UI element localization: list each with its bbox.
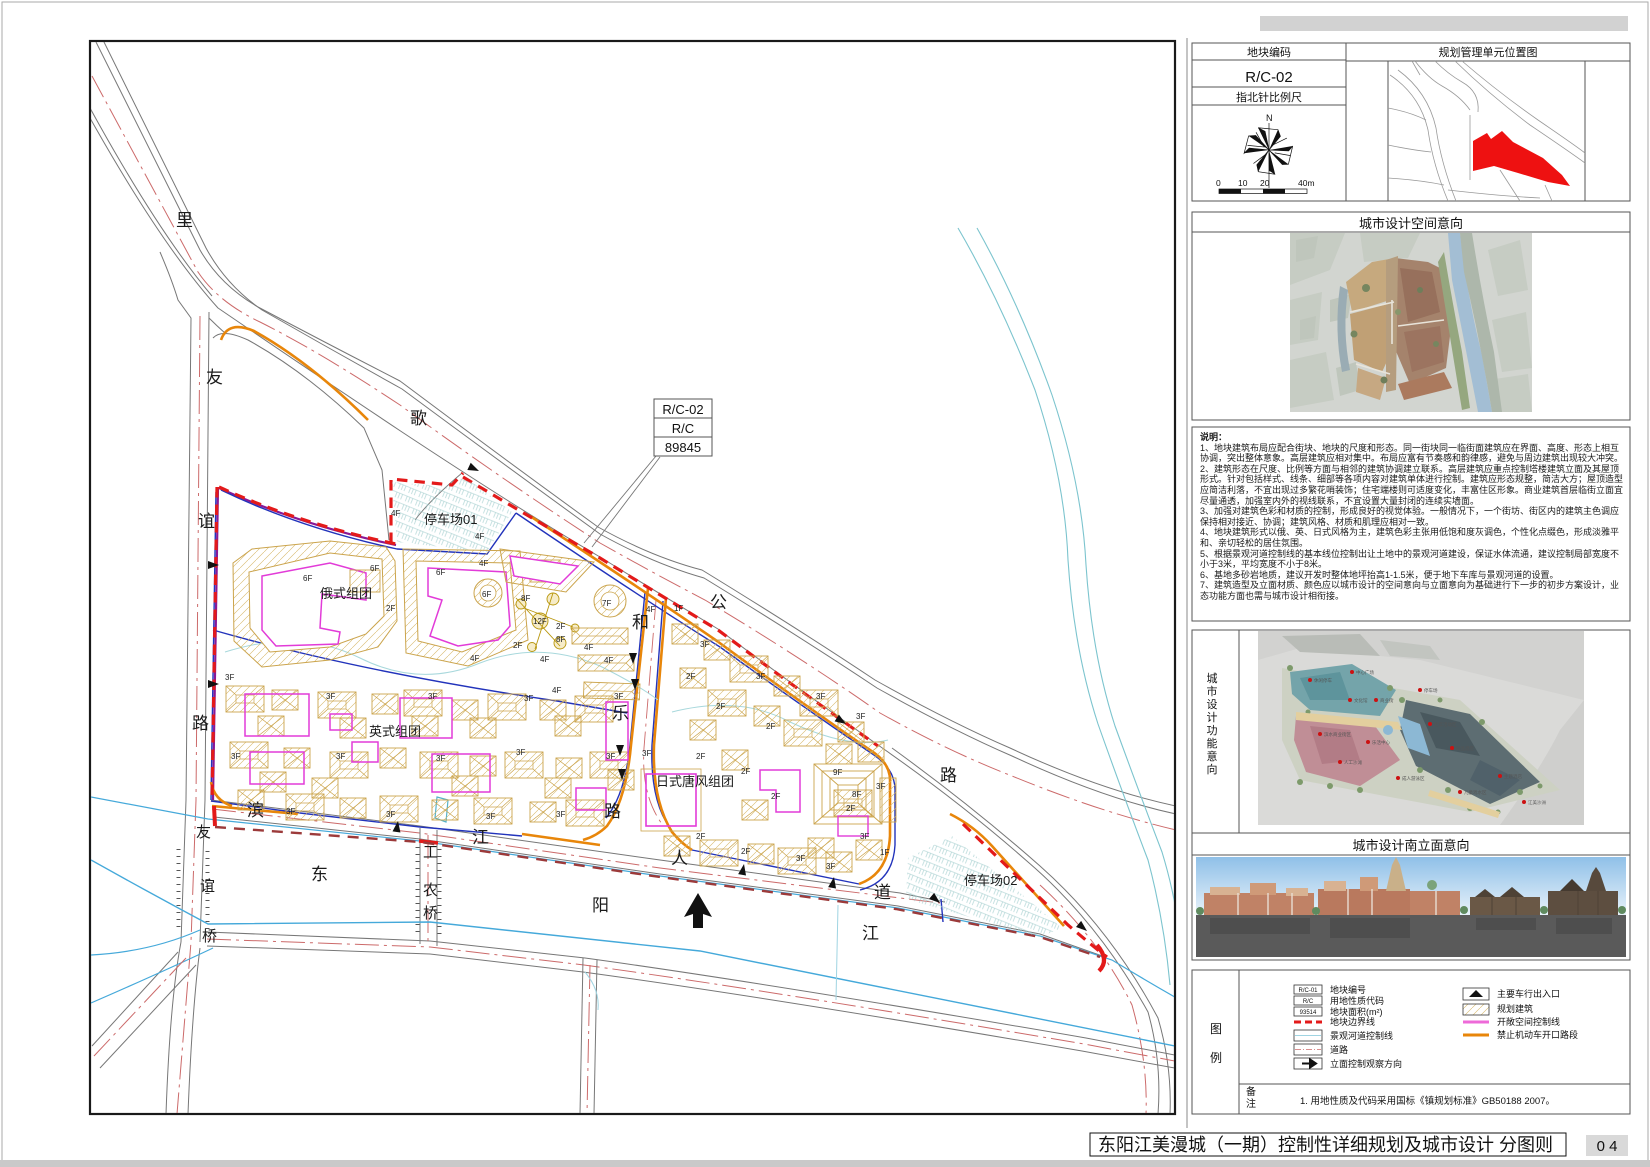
svg-text:景观河道控制线: 景观河道控制线	[1330, 1030, 1393, 1041]
svg-text:停车场: 停车场	[1424, 687, 1438, 694]
svg-text:3F: 3F	[816, 692, 825, 701]
svg-text:4F: 4F	[470, 654, 479, 663]
svg-text:12F: 12F	[533, 617, 547, 626]
svg-text:友: 友	[196, 824, 211, 841]
svg-text:道路: 道路	[1330, 1044, 1348, 1055]
svg-text:R/C-02: R/C-02	[662, 402, 703, 417]
svg-text:江: 江	[862, 924, 879, 943]
svg-text:4F: 4F	[552, 686, 561, 695]
svg-text:公: 公	[710, 593, 727, 612]
svg-text:东阳江美漫城（一期）控制性详细规划及城市设计 分图则: 东阳江美漫城（一期）控制性详细规划及城市设计 分图则	[1098, 1135, 1553, 1155]
svg-text:2F: 2F	[766, 722, 775, 731]
svg-text:3F: 3F	[428, 692, 437, 701]
svg-text:立面控制观察方向: 立面控制观察方向	[1330, 1058, 1402, 1069]
svg-text:6F: 6F	[303, 574, 312, 583]
svg-text:备: 备	[1246, 1085, 1256, 1098]
svg-text:乐活中心: 乐活中心	[1372, 739, 1390, 746]
svg-text:3F: 3F	[516, 748, 525, 757]
svg-text:2F: 2F	[696, 752, 705, 761]
svg-text:用地性质代码: 用地性质代码	[1330, 995, 1384, 1006]
svg-text:桥: 桥	[202, 928, 217, 945]
svg-text:滨: 滨	[247, 801, 264, 820]
svg-text:地块面积(m²): 地块面积(m²)	[1330, 1006, 1383, 1017]
svg-text:7F: 7F	[602, 599, 611, 608]
svg-text:主题酒店: 主题酒店	[1504, 773, 1522, 780]
svg-text:路: 路	[940, 766, 957, 785]
svg-text:文化馆: 文化馆	[1354, 697, 1368, 704]
svg-text:R/C: R/C	[672, 421, 694, 436]
svg-text:3F: 3F	[876, 782, 885, 791]
svg-text:江美沙洲: 江美沙洲	[1528, 799, 1546, 806]
svg-text:N: N	[1266, 113, 1273, 123]
svg-text:和: 和	[632, 613, 649, 632]
svg-text:0: 0	[1216, 178, 1221, 188]
svg-text:2F: 2F	[686, 672, 695, 681]
svg-text:例: 例	[1210, 1051, 1222, 1065]
svg-text:规划建筑: 规划建筑	[1497, 1003, 1533, 1014]
svg-text:中心广场: 中心广场	[1356, 669, 1374, 676]
svg-text:4F: 4F	[391, 509, 400, 518]
svg-text:乐: 乐	[612, 704, 629, 723]
svg-text:6F: 6F	[370, 564, 379, 573]
svg-text:3F: 3F	[326, 692, 335, 701]
svg-text:向: 向	[1207, 762, 1218, 776]
svg-text:城市设计南立面意向: 城市设计南立面意向	[1352, 838, 1469, 853]
svg-text:谊: 谊	[198, 512, 215, 531]
svg-text:3F: 3F	[486, 812, 495, 821]
svg-text:3F: 3F	[614, 692, 623, 701]
svg-text:市: 市	[1207, 684, 1218, 698]
svg-text:4F: 4F	[479, 559, 488, 568]
svg-text:图: 图	[1210, 1022, 1222, 1036]
svg-text:道: 道	[874, 883, 891, 902]
svg-text:工: 工	[423, 844, 438, 861]
svg-text:2F: 2F	[386, 604, 395, 613]
svg-text:精品酒店: 精品酒店	[1456, 745, 1474, 752]
svg-text:注: 注	[1246, 1097, 1256, 1110]
svg-text:20: 20	[1260, 178, 1270, 188]
svg-text:0 4: 0 4	[1597, 1138, 1618, 1155]
svg-text:东: 东	[311, 865, 328, 884]
svg-text:人工沙滩: 人工沙滩	[1344, 759, 1362, 766]
svg-text:2F: 2F	[556, 622, 565, 631]
svg-text:89845: 89845	[665, 440, 701, 455]
svg-text:计: 计	[1207, 711, 1218, 724]
svg-text:商业街: 商业街	[1380, 697, 1394, 704]
svg-text:里: 里	[176, 211, 193, 230]
svg-text:1F: 1F	[880, 848, 889, 857]
svg-text:93514: 93514	[1300, 1010, 1317, 1016]
svg-text:城市设计空间意向: 城市设计空间意向	[1359, 216, 1463, 231]
svg-text:4F: 4F	[540, 655, 549, 664]
svg-text:主要车行出入口: 主要车行出入口	[1497, 988, 1560, 999]
svg-text:路: 路	[604, 802, 621, 821]
svg-text:地块编码: 地块编码	[1247, 45, 1291, 59]
svg-text:3F: 3F	[524, 694, 533, 703]
svg-text:8F: 8F	[556, 635, 565, 644]
svg-text:4F: 4F	[604, 656, 613, 665]
svg-text:40m: 40m	[1298, 178, 1315, 188]
svg-text:2F: 2F	[741, 767, 750, 776]
svg-text:3F: 3F	[386, 810, 395, 819]
svg-text:能: 能	[1207, 736, 1218, 750]
svg-text:桥: 桥	[423, 905, 438, 922]
svg-text:3F: 3F	[700, 640, 709, 649]
svg-text:禁止机动车开口路段: 禁止机动车开口路段	[1497, 1029, 1578, 1040]
svg-text:2F: 2F	[846, 804, 855, 813]
svg-text:谊: 谊	[200, 878, 215, 895]
svg-text:英式组团: 英式组团	[369, 724, 421, 739]
svg-text:2F: 2F	[741, 847, 750, 856]
svg-text:8F: 8F	[521, 594, 530, 603]
svg-text:儿童戏水区: 儿童戏水区	[1464, 789, 1487, 796]
svg-text:3F: 3F	[796, 854, 805, 863]
svg-text:3F: 3F	[436, 754, 445, 763]
svg-text:4F: 4F	[584, 643, 593, 652]
svg-text:3F: 3F	[642, 749, 651, 758]
svg-text:友: 友	[206, 368, 223, 387]
svg-text:歌: 歌	[410, 409, 427, 428]
svg-text:4F: 4F	[475, 532, 484, 541]
svg-text:10: 10	[1238, 178, 1248, 188]
svg-text:人: 人	[671, 849, 688, 868]
svg-text:6F: 6F	[436, 568, 445, 577]
svg-text:3F: 3F	[860, 832, 869, 841]
svg-text:3F: 3F	[336, 752, 345, 761]
svg-text:老年活动区: 老年活动区	[1434, 721, 1457, 728]
svg-text:农: 农	[423, 882, 438, 899]
svg-text:1. 用地性质及代码采用国标《镇规划标准》GB50188: 1. 用地性质及代码采用国标《镇规划标准》GB50188 2007。	[1300, 1095, 1555, 1107]
svg-text:路: 路	[192, 714, 209, 733]
svg-text:地块编号: 地块编号	[1330, 984, 1366, 995]
svg-text:设: 设	[1207, 698, 1218, 711]
svg-text:2F: 2F	[513, 641, 522, 650]
svg-text:3F: 3F	[225, 673, 234, 682]
svg-text:3F: 3F	[856, 712, 865, 721]
svg-text:意: 意	[1207, 749, 1218, 763]
svg-text:指北针比例尺: 指北针比例尺	[1236, 90, 1302, 104]
svg-text:1F: 1F	[674, 604, 683, 613]
svg-text:休闲停车: 休闲停车	[1314, 677, 1332, 684]
svg-text:阳: 阳	[592, 896, 609, 915]
svg-text:3F: 3F	[231, 752, 240, 761]
svg-text:8F: 8F	[852, 790, 861, 799]
svg-text:停车场02: 停车场02	[964, 873, 1017, 888]
svg-text:9F: 9F	[833, 768, 842, 777]
svg-text:3F: 3F	[606, 752, 615, 761]
svg-text:3F: 3F	[556, 810, 565, 819]
svg-text:2F: 2F	[771, 792, 780, 801]
svg-text:成人游泳区: 成人游泳区	[1402, 775, 1425, 782]
svg-text:R/C: R/C	[1303, 999, 1314, 1005]
svg-text:R/C-02: R/C-02	[1245, 69, 1293, 86]
svg-text:城: 城	[1207, 672, 1218, 685]
svg-text:3F: 3F	[826, 862, 835, 871]
svg-text:规划管理单元位置图: 规划管理单元位置图	[1439, 45, 1538, 59]
svg-text:3F: 3F	[756, 672, 765, 681]
svg-text:开敞空间控制线: 开敞空间控制线	[1497, 1016, 1560, 1027]
svg-text:2F: 2F	[716, 702, 725, 711]
svg-text:日式唐风组团: 日式唐风组团	[656, 774, 734, 789]
svg-text:6F: 6F	[482, 590, 491, 599]
svg-text:R/C-01: R/C-01	[1298, 988, 1318, 994]
svg-text:江: 江	[472, 828, 489, 847]
svg-text:3F: 3F	[286, 807, 295, 816]
svg-text:停车场01: 停车场01	[424, 512, 477, 527]
svg-text:2F: 2F	[696, 832, 705, 841]
svg-text:功: 功	[1207, 724, 1218, 737]
svg-text:滨水商业街区: 滨水商业街区	[1324, 731, 1351, 738]
svg-text:俄式组团: 俄式组团	[320, 586, 372, 601]
svg-text:地块边界线: 地块边界线	[1330, 1016, 1375, 1027]
